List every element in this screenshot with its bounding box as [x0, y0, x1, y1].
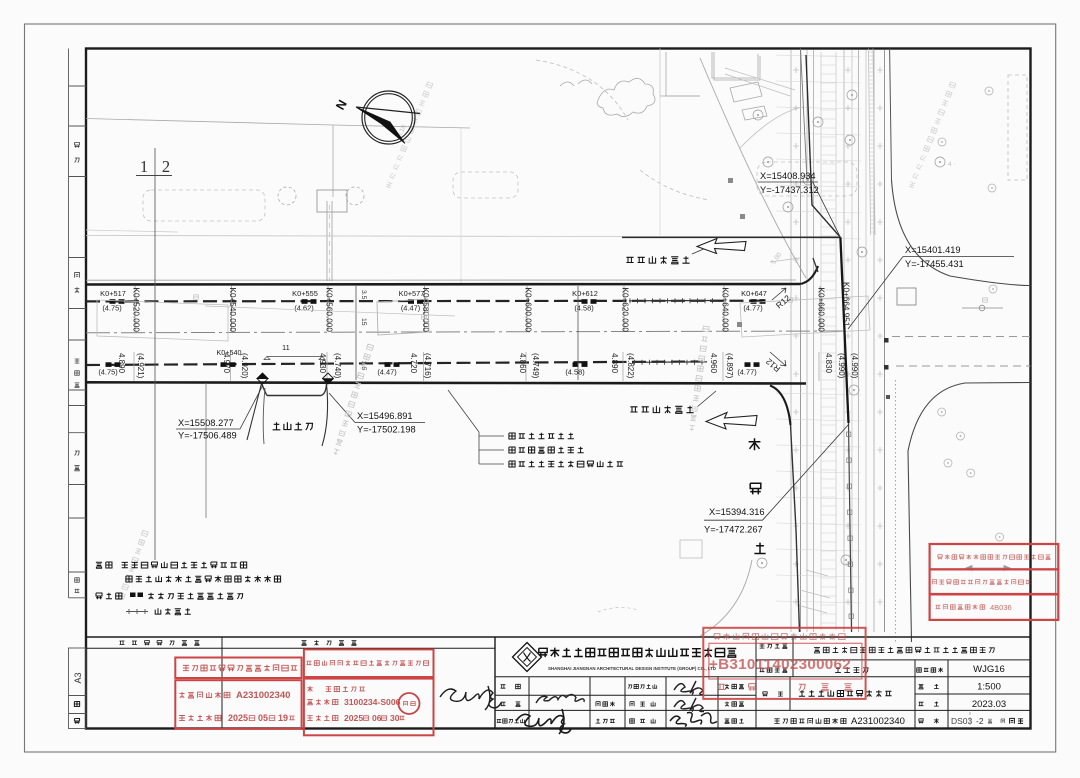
svg-text:K0+520.000: K0+520.000 [132, 288, 141, 333]
svg-text:(4.921): (4.921) [136, 353, 145, 379]
svg-text:3.5: 3.5 [360, 290, 367, 300]
svg-text:X=15394.316: X=15394.316 [709, 507, 765, 517]
svg-text:(4.62): (4.62) [294, 304, 313, 313]
svg-text:4.720: 4.720 [409, 353, 418, 374]
svg-text:(4.77): (4.77) [737, 368, 756, 377]
svg-text:15: 15 [360, 318, 367, 326]
svg-text:4.890: 4.890 [610, 353, 619, 374]
svg-text:K0+560.000: K0+560.000 [325, 288, 334, 333]
svg-text:4.830: 4.830 [824, 353, 833, 374]
svg-text:A3: A3 [73, 672, 83, 683]
svg-text:1: 1 [140, 157, 148, 176]
svg-text:Y=-17455.431: Y=-17455.431 [905, 259, 964, 269]
svg-text:K0+517: K0+517 [100, 289, 126, 298]
svg-text:(4.920): (4.920) [240, 353, 249, 379]
svg-text:30: 30 [390, 713, 400, 723]
svg-text:X=15401.419: X=15401.419 [905, 245, 961, 255]
svg-text:K0+600.000: K0+600.000 [524, 288, 533, 333]
svg-text:2025: 2025 [228, 713, 248, 723]
svg-text:X=15508.277: X=15508.277 [178, 418, 234, 428]
svg-text:(4.75): (4.75) [98, 368, 117, 377]
svg-text:2: 2 [162, 157, 170, 176]
svg-text:4.960: 4.960 [709, 353, 718, 374]
svg-text:1:500: 1:500 [977, 682, 1001, 693]
svg-text:SHANGHAI JIANGNAN ARCHITECTURA: SHANGHAI JIANGNAN ARCHITECTURAL DESIGN I… [548, 666, 716, 671]
svg-text:K0+647: K0+647 [741, 289, 767, 298]
svg-text:(4.77): (4.77) [743, 304, 762, 313]
svg-text:06: 06 [372, 713, 382, 723]
svg-text:K0+640.000: K0+640.000 [721, 288, 730, 333]
svg-text:(4.897): (4.897) [725, 353, 734, 379]
svg-text:4B036: 4B036 [990, 603, 1012, 612]
svg-text:DS03: DS03 [951, 716, 973, 726]
svg-text:3100234-S006: 3100234-S006 [344, 697, 401, 707]
svg-text:2025: 2025 [344, 713, 363, 723]
svg-text:(4.822): (4.822) [626, 353, 635, 379]
svg-text:K0+577: K0+577 [399, 289, 425, 298]
svg-text:K0+660.000: K0+660.000 [817, 288, 826, 333]
svg-text:4.890: 4.890 [117, 353, 126, 374]
svg-text:WJG16: WJG16 [973, 664, 1005, 675]
svg-text:4.970: 4.970 [222, 353, 231, 374]
svg-text:4.860: 4.860 [518, 353, 527, 374]
svg-text:X=15496.891: X=15496.891 [357, 411, 413, 421]
svg-text:K0+555: K0+555 [292, 289, 318, 298]
svg-text:(4.47): (4.47) [401, 304, 420, 313]
svg-text:-2: -2 [976, 716, 984, 726]
svg-text:4.930: 4.930 [318, 353, 327, 374]
svg-text:05: 05 [258, 713, 268, 723]
svg-text:19: 19 [278, 713, 288, 723]
svg-text:(4.47): (4.47) [377, 368, 396, 377]
svg-text:A231002340: A231002340 [236, 690, 290, 701]
svg-text:2023.03: 2023.03 [972, 699, 1006, 710]
svg-text:· 4 ·: · 4 · [944, 161, 956, 168]
svg-text:K0+540.000: K0+540.000 [228, 288, 237, 333]
svg-text:A231002340: A231002340 [851, 716, 905, 727]
svg-text:(4.58): (4.58) [574, 304, 593, 313]
svg-text:(4.990): (4.990) [850, 353, 859, 379]
svg-text:+B31011402300062: +B31011402300062 [709, 656, 851, 673]
svg-text:(4.716): (4.716) [423, 353, 432, 379]
svg-text:Y=-17502.198: Y=-17502.198 [357, 425, 416, 435]
svg-text:(4.75): (4.75) [102, 304, 121, 313]
svg-text:X=15408.934: X=15408.934 [760, 171, 816, 181]
svg-text:(4.740): (4.740) [333, 353, 342, 379]
svg-text:(4.749): (4.749) [531, 353, 540, 379]
svg-text:Y=-17506.489: Y=-17506.489 [178, 431, 237, 441]
svg-text:11: 11 [282, 343, 290, 352]
svg-text:Y=-17437.312: Y=-17437.312 [760, 185, 819, 195]
svg-text:Y=-17472.267: Y=-17472.267 [704, 525, 763, 535]
svg-text:K0+612: K0+612 [572, 289, 598, 298]
svg-text:(4.58): (4.58) [565, 368, 584, 377]
svg-text:K0+620.000: K0+620.000 [621, 288, 630, 333]
